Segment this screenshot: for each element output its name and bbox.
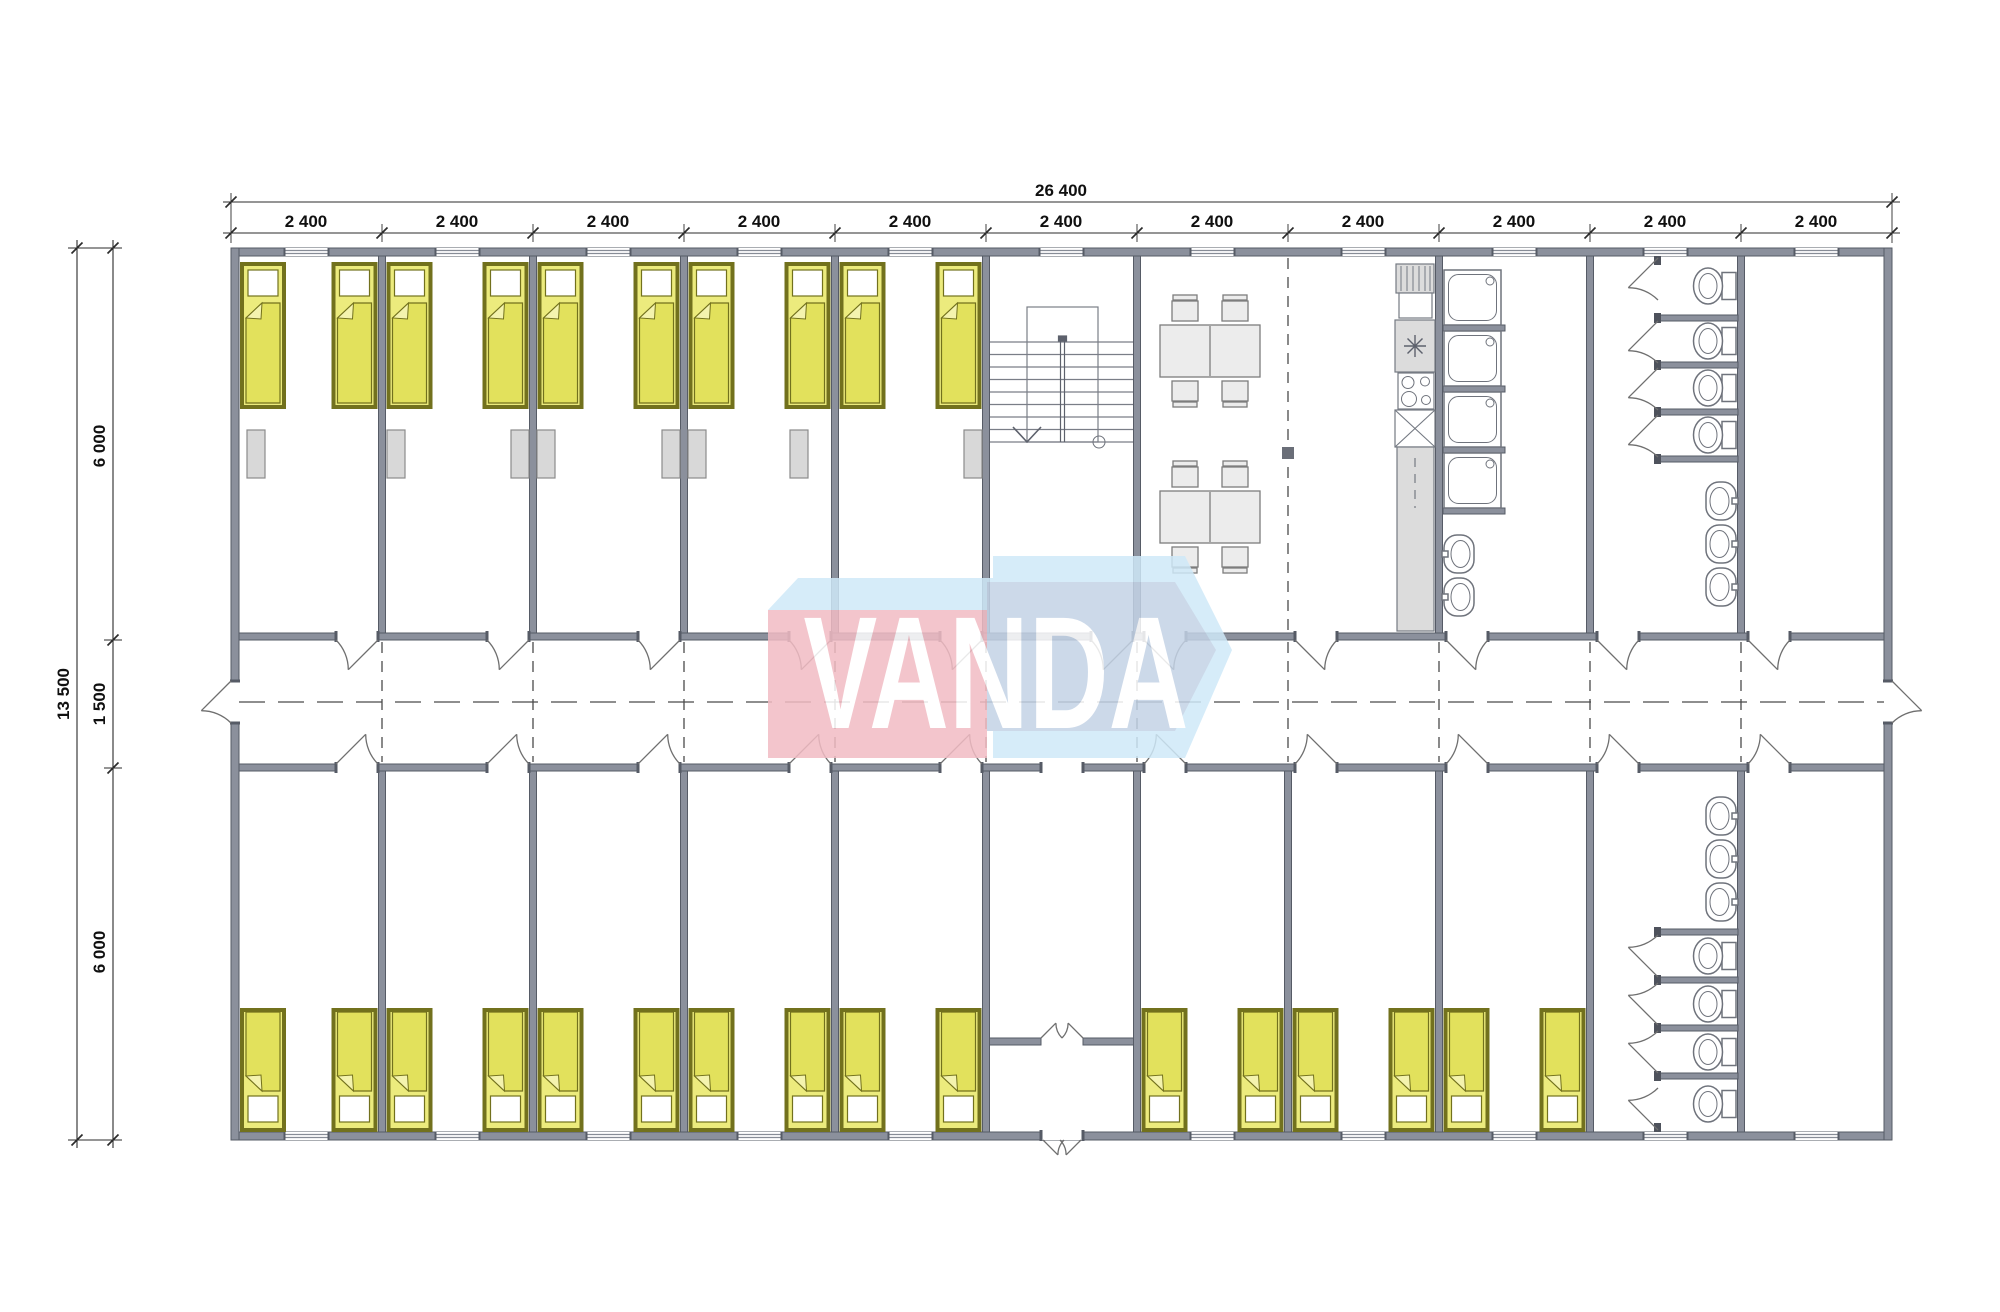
chair [1222, 381, 1248, 407]
window [1039, 248, 1085, 256]
door-opening [1445, 762, 1490, 773]
bed [1144, 1010, 1186, 1130]
bed [334, 264, 376, 407]
door-opening [1445, 631, 1490, 642]
stall-door [1628, 1088, 1658, 1130]
nightstand [537, 430, 555, 478]
shower [1444, 331, 1501, 386]
toilet [1694, 268, 1737, 304]
window [284, 248, 330, 256]
window [1643, 248, 1689, 256]
partition-wall [681, 256, 688, 633]
window [1492, 248, 1538, 256]
bed [334, 1010, 376, 1130]
bed [540, 264, 582, 407]
bed [636, 264, 678, 407]
bed [787, 1010, 829, 1130]
chair [1222, 295, 1248, 321]
stall-wall [1660, 362, 1738, 368]
bed [1446, 1010, 1488, 1130]
toilet [1694, 370, 1737, 406]
door-opening [1143, 762, 1188, 773]
chair [1222, 547, 1248, 573]
toilet-room-wall [1738, 256, 1745, 633]
door-opening [939, 762, 984, 773]
toilet-room-fixtures [1694, 268, 1739, 1122]
bed [691, 264, 733, 407]
door [638, 734, 680, 764]
window [1794, 248, 1840, 256]
partition-wall [1436, 771, 1443, 1132]
door [336, 640, 378, 670]
stall-hinge-stubs [1654, 256, 1661, 1132]
nightstand [662, 430, 680, 478]
nightstand [247, 430, 265, 478]
dim-label: 2 400 [738, 212, 781, 231]
partition-wall [530, 256, 537, 633]
bed [1295, 1010, 1337, 1130]
dining-table [1160, 491, 1260, 543]
vestibule-corridor-opening [1040, 762, 1085, 773]
door-opening [1294, 631, 1339, 642]
partition-wall [379, 771, 386, 1132]
stall-door [1628, 983, 1658, 1025]
wash-basin [1442, 535, 1474, 573]
dish-rack [1396, 264, 1434, 293]
dim-label-total-width: 26 400 [1035, 181, 1087, 200]
door [1446, 734, 1488, 764]
window [1190, 1132, 1236, 1140]
nightstand [790, 430, 808, 478]
partition-wall [379, 256, 386, 633]
window [435, 1132, 481, 1140]
nightstand [688, 430, 706, 478]
bed [242, 264, 284, 407]
stove [1395, 320, 1435, 372]
nightstands [247, 430, 982, 478]
shower-stub-wall [1443, 386, 1505, 392]
door [638, 640, 680, 670]
shower-stub-wall [1443, 447, 1505, 453]
door-opening [788, 762, 833, 773]
chair [1222, 461, 1248, 487]
vestibule-wall-right [1134, 771, 1141, 1132]
dim-label: 2 400 [889, 212, 932, 231]
wash-basin [1706, 482, 1738, 520]
chair [1172, 461, 1198, 487]
window [586, 248, 632, 256]
partition-wall [1285, 771, 1292, 1132]
nightstand [387, 430, 405, 478]
dim-label: 2 400 [1795, 212, 1838, 231]
bed [842, 1010, 884, 1130]
bed [691, 1010, 733, 1130]
stall-door [1628, 1031, 1658, 1073]
floor-plan-drawing: 26 400 2 400 2 400 2 400 2 400 2 400 2 4… [0, 0, 2000, 1312]
dim-label: 2 400 [1342, 212, 1385, 231]
door-opening [486, 631, 531, 642]
dim-label: 2 400 [1040, 212, 1083, 231]
bed [389, 264, 431, 407]
door-opening [637, 762, 682, 773]
door [1446, 640, 1488, 670]
window [1794, 1132, 1840, 1140]
partition-post [1282, 447, 1294, 459]
kitchen-wall [1436, 256, 1443, 633]
door [1295, 640, 1337, 670]
dim-label-total-height: 13 500 [54, 668, 73, 720]
window [1341, 248, 1387, 256]
bed [1240, 1010, 1282, 1130]
dim-label: 1 500 [90, 683, 109, 726]
door-opening [1596, 631, 1641, 642]
entrance-door-leaf [1043, 1140, 1064, 1155]
cooktop [1398, 373, 1434, 409]
shower [1444, 453, 1501, 508]
stall-door [1628, 935, 1658, 977]
nightstand [511, 430, 529, 478]
stairs [990, 307, 1133, 448]
vestibule-door-leaf [1041, 1023, 1062, 1038]
kitchen-sink-unit [1399, 293, 1432, 318]
window [586, 1132, 632, 1140]
bed [485, 1010, 527, 1130]
toilet-room-wall [1738, 771, 1745, 1132]
vestibule-inner-wall [990, 1038, 1042, 1045]
dim-label: 2 400 [587, 212, 630, 231]
chair [1172, 295, 1198, 321]
wash-basin [1442, 578, 1474, 616]
window [737, 248, 783, 256]
wash-basin [1706, 883, 1738, 921]
toilet [1694, 1086, 1737, 1122]
stair-handrail [1059, 336, 1067, 442]
stall-door [1628, 415, 1658, 457]
wash-basin [1706, 840, 1738, 878]
bed [636, 1010, 678, 1130]
door [1597, 734, 1639, 764]
door-opening [335, 762, 380, 773]
partition-wall [1587, 771, 1594, 1132]
bed [389, 1010, 431, 1130]
door [1748, 640, 1790, 670]
shower-stub-wall [1443, 508, 1505, 514]
entrance-opening [1040, 1130, 1085, 1141]
floor-plan-canvas: 26 400 2 400 2 400 2 400 2 400 2 400 2 4… [0, 0, 2000, 1312]
shower-stub-wall [1443, 325, 1505, 331]
shower [1444, 270, 1501, 325]
dim-label: 2 400 [1493, 212, 1536, 231]
toilet [1694, 323, 1737, 359]
bed [842, 264, 884, 407]
door [1295, 734, 1337, 764]
stall-door [1628, 258, 1658, 300]
watermark-text: VANDA [804, 583, 1189, 762]
window [1492, 1132, 1538, 1140]
window [435, 248, 481, 256]
chair [1172, 381, 1198, 407]
toilet [1694, 938, 1737, 974]
door-opening [335, 631, 380, 642]
bed [1391, 1010, 1433, 1130]
washroom-fixtures [1442, 270, 1501, 616]
door-opening [486, 762, 531, 773]
door-opening [637, 631, 682, 642]
watermark: VANDA [768, 556, 1232, 762]
stall-wall [1660, 456, 1738, 462]
dim-label: 2 400 [1644, 212, 1687, 231]
stall-door [1628, 321, 1658, 363]
toilet [1694, 417, 1737, 453]
exit-opening-left [230, 680, 240, 725]
window [737, 1132, 783, 1140]
door [487, 640, 529, 670]
window [888, 1132, 934, 1140]
kitchen-block [1395, 264, 1435, 631]
dim-label: 6 000 [90, 425, 109, 468]
window [888, 248, 934, 256]
bed [485, 264, 527, 407]
vestibule-inner-wall [1083, 1038, 1134, 1045]
dim-label: 6 000 [90, 931, 109, 974]
bed [1542, 1010, 1584, 1130]
appliance-unit [1395, 410, 1435, 447]
exit-opening-right [1883, 680, 1893, 725]
exit-door [1892, 681, 1922, 723]
door-opening [1294, 762, 1339, 773]
stall-wall [1660, 929, 1738, 935]
partition-wall [832, 771, 839, 1132]
nightstand [964, 430, 982, 478]
stall-wall [1660, 315, 1738, 321]
door [336, 734, 378, 764]
stall-wall [1660, 977, 1738, 983]
stall-wall [1660, 409, 1738, 415]
window [1190, 248, 1236, 256]
vestibule-door-leaf [1062, 1023, 1083, 1038]
door-opening [1596, 762, 1641, 773]
door [1748, 734, 1790, 764]
wash-basin [1706, 568, 1738, 606]
shower [1444, 392, 1501, 447]
kitchen-counter [1397, 447, 1434, 631]
bed [787, 264, 829, 407]
dining-area [1160, 295, 1260, 573]
window [1643, 1132, 1689, 1140]
bed [540, 1010, 582, 1130]
door [1597, 640, 1639, 670]
washroom-wall [1587, 256, 1594, 633]
dim-label: 2 400 [285, 212, 328, 231]
toilet [1694, 986, 1737, 1022]
vestibule-wall-left [983, 771, 990, 1132]
window [1341, 1132, 1387, 1140]
stall-wall [1660, 1073, 1738, 1079]
partition-wall [832, 256, 839, 633]
dim-label: 2 400 [436, 212, 479, 231]
door [487, 734, 529, 764]
wash-basin [1706, 525, 1738, 563]
bed [938, 264, 980, 407]
partition-wall [681, 771, 688, 1132]
stall-door [1628, 368, 1658, 410]
toilet [1694, 1034, 1737, 1070]
partition-wall [530, 771, 537, 1132]
window [284, 1132, 330, 1140]
door-opening [1747, 631, 1792, 642]
wash-basin [1706, 797, 1738, 835]
bed [938, 1010, 980, 1130]
door-opening [1747, 762, 1792, 773]
dim-label: 2 400 [1191, 212, 1234, 231]
entrance-door-leaf [1060, 1140, 1081, 1155]
stall-wall [1660, 1025, 1738, 1031]
dining-table [1160, 325, 1260, 377]
exit-door [201, 681, 231, 723]
bed [242, 1010, 284, 1130]
stair-room-wall-left [983, 256, 990, 633]
